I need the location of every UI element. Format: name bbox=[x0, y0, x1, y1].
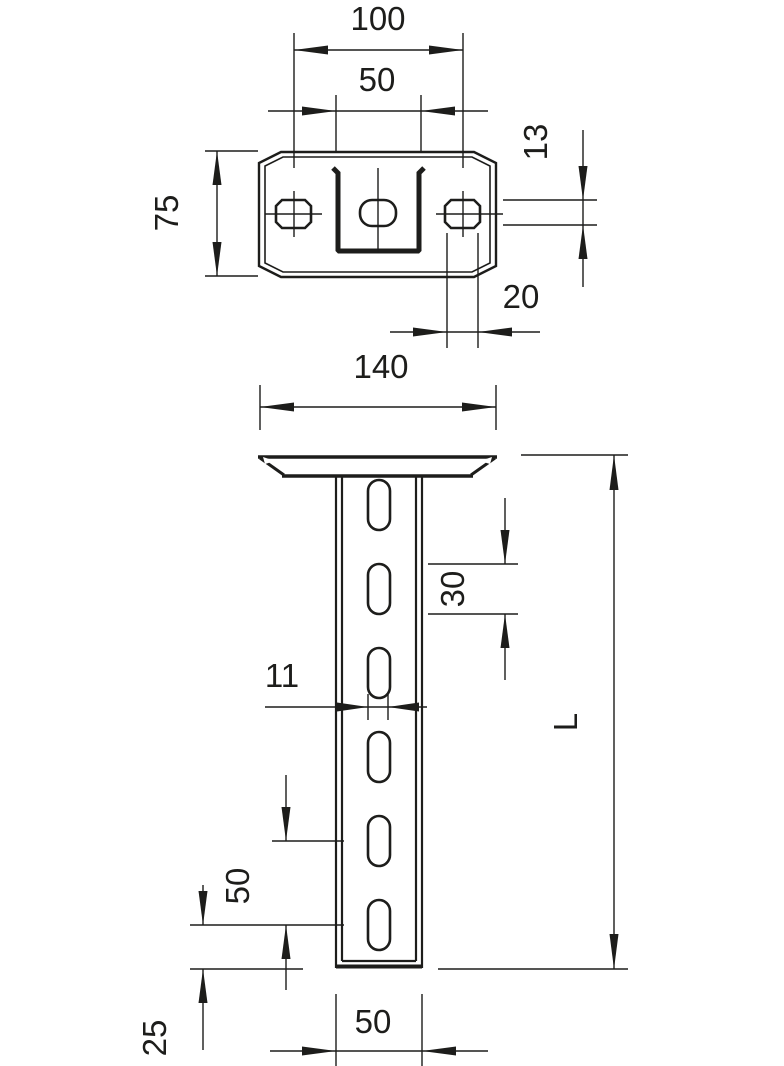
dimension-30: 30 bbox=[428, 498, 518, 680]
channel-slot-5 bbox=[368, 816, 390, 866]
dim-label-11: 11 bbox=[265, 657, 299, 694]
dimension-75: 75 bbox=[148, 151, 258, 276]
channel-slot-4 bbox=[368, 732, 390, 782]
dimension-13: 13 bbox=[503, 124, 597, 287]
dimension-50-bottom: 50 bbox=[270, 994, 488, 1066]
dim-label-50-bottom: 50 bbox=[355, 1003, 392, 1040]
front-view: 30 11 50 25 50 bbox=[136, 455, 628, 1066]
channel-slot-6 bbox=[368, 900, 390, 950]
dimension-140: 140 bbox=[260, 348, 496, 430]
dimension-11: 11 bbox=[265, 657, 427, 720]
dim-label-50-pitch: 50 bbox=[219, 868, 256, 905]
dim-label-140: 140 bbox=[353, 348, 408, 385]
drawing-svg: 100 50 75 13 20 bbox=[0, 0, 784, 1066]
dim-label-75: 75 bbox=[148, 195, 185, 232]
dim-label-100: 100 bbox=[350, 0, 405, 37]
dim-label-30: 30 bbox=[434, 571, 471, 608]
top-view: 100 50 75 13 20 bbox=[148, 0, 597, 430]
channel-slot-3 bbox=[368, 648, 390, 698]
dimension-50-pitch: 50 bbox=[190, 775, 344, 990]
technical-drawing-page: 100 50 75 13 20 bbox=[0, 0, 784, 1066]
dimension-25: 25 bbox=[136, 885, 303, 1056]
channel-slot-2 bbox=[368, 564, 390, 614]
dimension-50-top: 50 bbox=[268, 61, 488, 153]
dim-label-50-top: 50 bbox=[359, 61, 396, 98]
dim-label-20: 20 bbox=[503, 278, 540, 315]
dim-label-25: 25 bbox=[136, 1020, 173, 1057]
channel-slot-1 bbox=[368, 480, 390, 530]
dim-label-L: L bbox=[547, 713, 584, 731]
dim-label-13: 13 bbox=[517, 124, 554, 161]
dimension-L: L bbox=[438, 455, 628, 969]
